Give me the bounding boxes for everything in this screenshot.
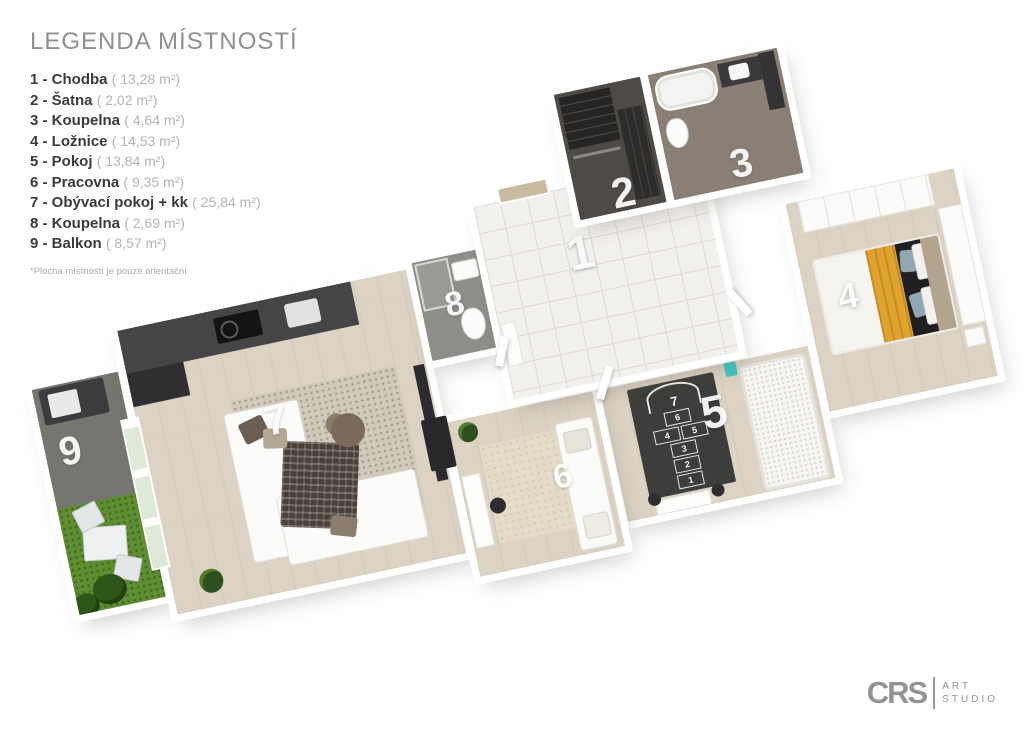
kids-bed: [738, 352, 831, 491]
legend-room-label: 8 - Koupelna: [30, 215, 120, 232]
legend-room-label: 1 - Chodba: [30, 71, 108, 88]
kitchen-counter: [117, 281, 359, 374]
legend-item-4: 4 - Ložnice ( 14,53 m²): [30, 134, 298, 150]
legend-room-label: 3 - Koupelna: [30, 112, 120, 129]
legend-room-label: 2 - Šatna: [30, 92, 93, 109]
legend-item-6: 6 - Pracovna ( 9,35 m²): [30, 175, 298, 191]
nightstand: [964, 326, 987, 348]
room-number-1: 1: [562, 224, 600, 283]
room-pracovna: 6: [448, 391, 626, 576]
room-koupelna-mala: 8: [412, 249, 497, 361]
desk-chair: [710, 482, 725, 497]
vanity-sink: [717, 56, 763, 88]
legend-room-area: ( 8,57 m²): [106, 235, 167, 251]
washbasin: [451, 258, 480, 282]
pillow: [330, 515, 358, 538]
kitchen-sink: [284, 298, 322, 329]
room-koupelna: 3: [648, 48, 804, 201]
room-obyvaci-pokoj: 7: [117, 270, 466, 615]
legend-room-area: ( 13,28 m²): [112, 71, 180, 87]
cooktop: [213, 309, 263, 344]
room-number-3: 3: [726, 140, 757, 189]
legend-room-label: 4 - Ložnice: [30, 133, 108, 150]
room-legend: LEGENDA MÍSTNOSTÍ 1 - Chodba ( 13,28 m²)…: [30, 28, 298, 277]
legend-room-area: ( 14,53 m²): [112, 133, 180, 149]
legend-room-label: 7 - Obývací pokoj + kk: [30, 194, 188, 211]
hopscotch-cell: 7: [644, 377, 702, 414]
legend-item-5: 5 - Pokoj ( 13,84 m²): [30, 154, 298, 170]
crs-art-studio-logo: CRS ART STUDIO: [867, 675, 998, 711]
legend-item-7: 7 - Obývací pokoj + kk ( 25,84 m²): [30, 195, 298, 211]
legend-room-area: ( 2,69 m²): [124, 215, 185, 231]
legend-room-label: 5 - Pokoj: [30, 153, 93, 170]
room-number-8: 8: [441, 284, 468, 326]
toilet: [664, 116, 692, 150]
legend-room-area: ( 9,35 m²): [123, 174, 184, 190]
legend-item-8: 8 - Koupelna ( 2,69 m²): [30, 216, 298, 232]
kids-chair: [723, 361, 738, 377]
plant-icon: [456, 420, 480, 444]
bathtub: [652, 65, 720, 113]
logo-monogram: CRS: [867, 675, 926, 711]
hopscotch-cell: 1: [677, 470, 705, 489]
legend-room-label: 6 - Pracovna: [30, 174, 119, 191]
legend-item-2: 2 - Šatna ( 2,02 m²): [30, 93, 298, 109]
plant-icon: [197, 567, 225, 595]
double-bed: [812, 233, 960, 356]
logo-word-art: ART: [942, 680, 998, 693]
bathroom-cabinet: [758, 50, 786, 110]
logo-word-studio: STUDIO: [942, 693, 998, 706]
legend-item-1: 1 - Chodba ( 13,28 m²): [30, 72, 298, 88]
legend-item-3: 3 - Koupelna ( 4,64 m²): [30, 113, 298, 129]
room-number-9: 9: [55, 427, 86, 476]
legend-room-area: ( 4,64 m²): [124, 112, 185, 128]
legend-item-9: 9 - Balkon ( 8,57 m²): [30, 236, 298, 252]
legend-room-area: ( 13,84 m²): [97, 153, 165, 169]
grill: [38, 377, 110, 426]
legend-room-label: 9 - Balkon: [30, 235, 102, 252]
wardrobe-shelving: [559, 87, 621, 151]
legend-room-area: ( 25,84 m²): [192, 194, 260, 210]
logo-divider: [933, 677, 935, 709]
wardrobe: [797, 174, 935, 233]
legend-room-area: ( 2,02 m²): [97, 92, 158, 108]
room-loznice: 4: [786, 168, 998, 411]
legend-footnote: *Plocha místností je pouze orientační: [30, 266, 298, 277]
legend-title: LEGENDA MÍSTNOSTÍ: [30, 28, 298, 56]
logo-wordmark: ART STUDIO: [942, 680, 998, 706]
